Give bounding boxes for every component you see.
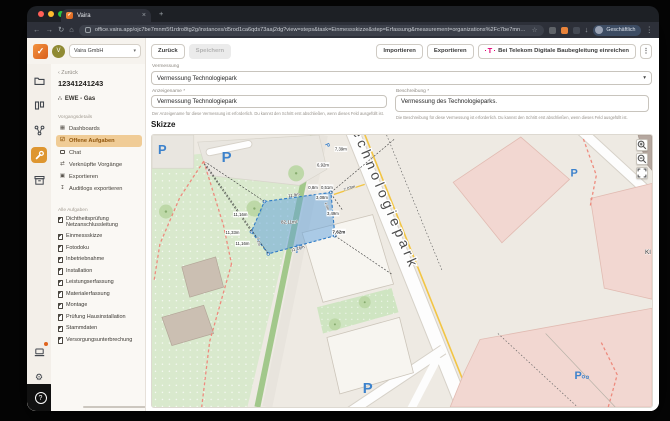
org-row: ✓ V Vaira GmbH ▾ (27, 38, 145, 64)
browser-tab[interactable]: ✓ Vaira × (61, 9, 151, 22)
reload-icon[interactable]: ↻ (58, 26, 64, 34)
skizze-heading: Skizze (151, 120, 175, 129)
sidebar-item-auditlogs[interactable]: ↧ Auditlogs exportieren (56, 183, 142, 195)
minimize-window-button[interactable] (48, 11, 54, 17)
map-canvas: Technologiepark P P P P P P P Kl (152, 135, 652, 407)
document-icon (58, 326, 63, 333)
sidebar-scrollbar[interactable] (83, 406, 145, 408)
new-tab-button[interactable]: + (159, 10, 163, 18)
link-icon: ⇄ (59, 162, 66, 168)
measurement-label: 6,92m (317, 163, 329, 168)
document-icon (58, 257, 63, 264)
measurement-label: 11,16m (234, 212, 248, 217)
bike-parking-icon: P (574, 370, 581, 382)
grid-icon: ▦ (59, 126, 66, 132)
sidebar-item-chat[interactable]: Chat (56, 147, 142, 159)
back-link[interactable]: ‹ Zurück (58, 70, 140, 76)
extension-icon[interactable] (573, 27, 580, 34)
vermessung-select[interactable]: Vermessung Technologiepark ▾ (151, 71, 652, 85)
url-text: office.vaira.app/ojc7be7mnm5f1rdro8tg2g/… (95, 27, 528, 33)
app-content: ✓ V Vaira GmbH ▾ (27, 38, 659, 411)
anzeigename-label: Anzeigename * (152, 89, 185, 94)
parking-icon: P (222, 149, 232, 166)
back-chevron-icon: ‹ (58, 70, 60, 76)
left-column: ✓ V Vaira GmbH ▾ (27, 38, 146, 411)
document-icon (58, 303, 63, 310)
task-item[interactable]: Fotodoku (58, 245, 140, 252)
place-label: Kl (645, 249, 651, 256)
checklist-icon: ☑ (59, 138, 66, 144)
browser-window: ✓ Vaira × + ← → ↻ ⌂ office.vaira.app/ojc… (27, 6, 659, 411)
process-id: 12341241243 (58, 79, 140, 88)
task-item[interactable]: Materialerfassung (58, 291, 140, 298)
home-icon[interactable]: ⌂ (69, 26, 74, 34)
browser-profile-chip[interactable]: Geschäftlich (593, 25, 640, 36)
tab-title: Vaira (77, 13, 138, 19)
beschreibung-label: Beschreibung * (396, 89, 429, 94)
document-icon (58, 337, 63, 344)
measurement-label: 3,08m (316, 195, 328, 200)
measurement-label: 11,16m (235, 241, 249, 246)
task-item[interactable]: Montage (58, 302, 140, 309)
org-select[interactable]: Vaira GmbH ▾ (69, 44, 141, 58)
browser-tab-strip: ✓ Vaira × + (27, 6, 659, 22)
forward-icon[interactable]: → (46, 26, 54, 34)
document-icon (58, 280, 63, 287)
help-corner: ? (27, 384, 54, 411)
task-item[interactable]: Dichtheitsprüfung Netzanschlussleitung (58, 216, 140, 229)
profile-name: Geschäftlich (606, 27, 635, 33)
tab-close-icon[interactable]: × (142, 12, 146, 19)
zoom-out-icon[interactable] (636, 153, 648, 165)
section-label: Alle Aufgaben (58, 208, 140, 213)
measurement-label: 7,62m (332, 229, 345, 234)
zurueck-button[interactable]: Zurück (151, 44, 185, 59)
address-bar[interactable]: office.vaira.app/ojc7be7mnm5f1rdro8tg2g/… (79, 25, 544, 36)
measurement-label: 0,8m (308, 185, 318, 190)
browser-menu-icon[interactable]: ⋮ (646, 26, 654, 34)
document-icon (58, 234, 63, 241)
downloads-icon[interactable]: ↓ (585, 26, 589, 34)
devices-laptop-icon[interactable] (31, 344, 47, 360)
anzeigename-input[interactable] (151, 95, 387, 108)
download-tray-icon: ↧ (59, 186, 66, 192)
map-controls (636, 139, 648, 179)
vaira-logo-icon: ✓ (33, 44, 48, 59)
profile-avatar (595, 26, 603, 34)
measurement-label: 3,49m (327, 211, 339, 216)
beschreibung-textarea[interactable]: Vermessung des Technologieparks. (395, 95, 649, 112)
help-button[interactable]: ? (35, 392, 47, 404)
process-sidebar: ‹ Zurück 12341241243 ∴ EWE - Gas Vorgang… (51, 64, 145, 411)
task-item[interactable]: Leistungserfassung (58, 279, 140, 286)
expand-icon[interactable] (636, 167, 648, 179)
archive-box-icon[interactable] (31, 172, 47, 188)
sidebar-item-dashboards[interactable]: ▦ Dashboards (56, 123, 142, 135)
importieren-button[interactable]: Importieren (376, 44, 422, 59)
bookmark-star-icon[interactable]: ☆ (532, 26, 538, 34)
task-item[interactable]: Installation (58, 268, 140, 275)
parking-icon: P (158, 142, 167, 157)
chat-bubble-icon (59, 150, 66, 157)
export-copy-icon: ▣ (59, 174, 66, 180)
icon-rail: ⚙ (27, 64, 51, 411)
workflow-network-icon[interactable] (31, 122, 47, 138)
measurement-label: 0,51m (321, 185, 333, 190)
task-item[interactable]: Inbetriebnahme (58, 256, 140, 263)
chevron-down-icon: ▾ (643, 75, 646, 81)
area-label: 82,11m² (281, 220, 298, 225)
parking-icon: P (363, 380, 373, 397)
telekom-submit-button[interactable]: T Bei Telekom Digitale Baubegleitung ein… (478, 44, 636, 59)
document-icon (58, 268, 63, 275)
gear-icon[interactable]: ⚙ (31, 369, 47, 385)
speichern-button[interactable]: Speichern (189, 44, 231, 59)
task-item[interactable]: Prüfung Hausinstallation (58, 314, 140, 321)
exportieren-button[interactable]: Exportieren (427, 44, 474, 59)
more-actions-button[interactable]: ⋮ (640, 44, 652, 59)
beschreibung-helper: Die Beschreibung für diese Vermessung is… (396, 115, 650, 120)
back-icon[interactable]: ← (33, 26, 41, 34)
telekom-t-icon: T (485, 47, 496, 55)
parking-icon: P (570, 167, 577, 179)
org-name: Vaira GmbH (74, 48, 131, 54)
sidebar-item-exportieren[interactable]: ▣ Exportieren (56, 171, 142, 183)
document-icon (58, 245, 63, 252)
sidebar-item-offene-aufgaben[interactable]: ☑ Offene Aufgaben (56, 135, 142, 147)
close-window-button[interactable] (38, 11, 44, 17)
zoom-in-icon[interactable] (636, 139, 648, 151)
vermessung-value: Vermessung Technologiepark (157, 75, 237, 82)
document-icon (58, 217, 63, 224)
measurement-label: 7,39m (335, 146, 347, 151)
section-label: Vorgangsdetails (58, 115, 140, 120)
projects-folder-icon[interactable] (31, 72, 47, 88)
main-panel: Zurück Speichern Importieren Exportieren… (147, 38, 659, 411)
document-icon (58, 314, 63, 321)
notification-badge (44, 342, 48, 346)
task-item[interactable]: Stammdaten (58, 325, 140, 332)
sketch-map[interactable]: Technologiepark P P P P P P P Kl (151, 134, 653, 408)
board-columns-icon[interactable] (31, 97, 47, 113)
site-info-icon[interactable] (85, 27, 91, 33)
step-toolbar: Zurück Speichern Importieren Exportieren… (151, 43, 652, 59)
measurement-label: 11,33m (226, 230, 240, 235)
tools-wrench-icon[interactable] (31, 147, 47, 163)
provider-tag[interactable]: ∴ EWE - Gas (58, 96, 140, 102)
vaira-favicon-icon: ✓ (66, 12, 73, 19)
task-item[interactable]: Versorgungsunterbrechung (58, 337, 140, 344)
document-icon (58, 291, 63, 298)
chevron-down-icon: ▾ (133, 48, 136, 54)
share-nodes-icon: ∴ (58, 96, 62, 102)
anzeigename-helper: Der Anzeigename für diese Vermessung ist… (152, 111, 388, 116)
extension-icon[interactable] (549, 27, 556, 34)
browser-toolbar: ← → ↻ ⌂ office.vaira.app/ojc7be7mnm5f1rd… (27, 22, 659, 38)
task-item[interactable]: Einmessskizze (58, 233, 140, 240)
vermessung-label: Vermessung (152, 64, 179, 69)
sidebar-item-verknuepfte-vorgaenge[interactable]: ⇄ Verknüpfte Vorgänge (56, 159, 142, 171)
extension-icon[interactable] (561, 27, 568, 34)
org-avatar[interactable]: V (52, 45, 65, 58)
